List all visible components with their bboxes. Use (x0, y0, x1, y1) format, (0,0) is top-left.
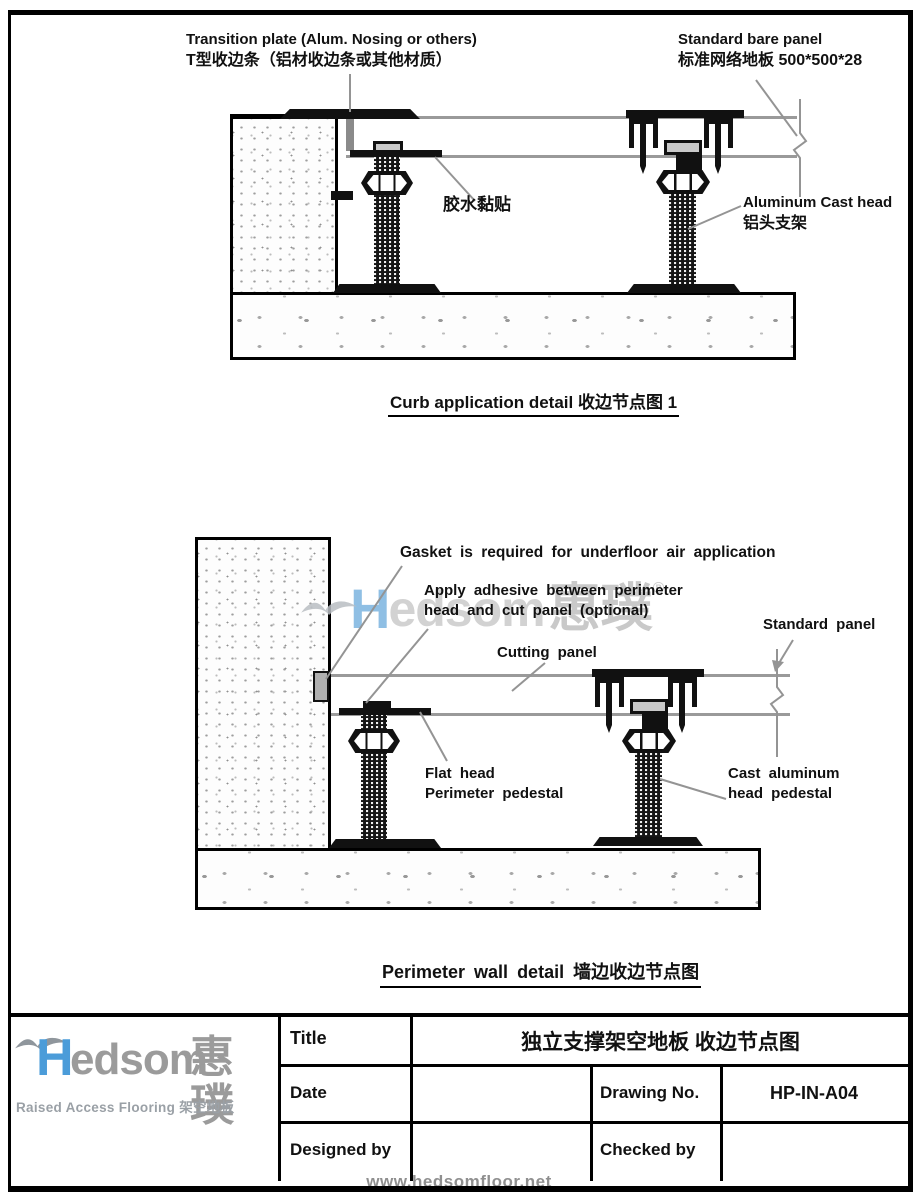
gasket (313, 671, 329, 702)
drawing-no-label: Drawing No. (600, 1083, 699, 1103)
logo-tagline: Raised Access Flooring 架空地板 (16, 1096, 234, 1116)
titleblock-row-divider-2 (280, 1121, 908, 1124)
label-transition-plate-en: Transition plate (Alum. Nosing or others… (186, 30, 477, 50)
pedestal4-base-plate (593, 837, 703, 846)
label-apply-adhesive: Apply adhesive between perimeter head an… (424, 581, 683, 621)
drawing-no-value: HP-IN-A04 (723, 1083, 905, 1104)
pedestal2-top-bar (626, 110, 744, 118)
leader-flat-head (420, 712, 447, 761)
label-flat-head-line1: Flat head (425, 764, 563, 784)
label-cast-head-zh: 铝头支架 (743, 213, 892, 234)
curb-concrete-block (230, 114, 338, 297)
label-cast-head-en: Aluminum Cast head (743, 193, 892, 213)
leader-standard-panel (776, 640, 793, 668)
label-cast-aluminum-line1: Cast aluminum (728, 764, 840, 784)
caption-curb-detail: Curb application detail 收边节点图 1 (388, 388, 679, 417)
drawing-sheet: Transition plate (Alum. Nosing or others… (0, 0, 918, 1200)
label-cutting-panel: Cutting panel (497, 643, 597, 663)
label-cast-head: Aluminum Cast head 铝头支架 (743, 193, 892, 234)
pedestal3-head-plate (339, 708, 431, 715)
label-flat-head-line2: Perimeter pedestal (425, 784, 563, 804)
floor-slab-2 (195, 848, 761, 910)
floor-slab-1 (230, 292, 796, 360)
title-value: 独立支撑架空地板 收边节点图 (413, 1026, 908, 1056)
pedestal3-nut (348, 729, 400, 753)
label-transition-plate-zh: T型收边条（铝材收边条或其他材质） (186, 50, 477, 71)
pedestal1-base-plate (333, 284, 441, 293)
title-label: Title (290, 1028, 327, 1049)
transition-plate (280, 109, 420, 119)
label-flat-head-pedestal: Flat head Perimeter pedestal (425, 764, 563, 804)
label-apply-adhesive-line2: head and cut panel (optional) (424, 601, 683, 621)
pedestal3-base-plate (329, 839, 441, 848)
pedestal1-nut (361, 171, 413, 195)
panel-edge-strip (346, 119, 354, 151)
pedestal4-top-bar (592, 669, 704, 677)
label-transition-plate: Transition plate (Alum. Nosing or others… (186, 30, 477, 71)
titleblock-col-mid (590, 1064, 593, 1181)
label-cast-aluminum-pedestal: Cast aluminum head pedestal (728, 764, 840, 804)
designed-by-label: Designed by (290, 1140, 391, 1160)
leader-cast-aluminum (660, 779, 726, 799)
logo-brand-cjk: 惠璞 (190, 1034, 274, 1131)
titleblock-row-divider-1 (280, 1064, 908, 1067)
titleblock-top-border (8, 1013, 908, 1017)
label-standard-bare-panel-zh: 标准网络地板 500*500*28 (678, 50, 862, 71)
label-standard-panel: Standard panel (763, 615, 875, 635)
pedestal2-left-screw (640, 124, 646, 166)
label-standard-bare-panel-en: Standard bare panel (678, 30, 862, 50)
label-gasket: Gasket is required for underfloor air ap… (400, 543, 775, 563)
arrowhead-standard-panel (772, 660, 784, 672)
pedestal1-head-plate (350, 150, 442, 157)
pedestal4-right-screw (679, 683, 685, 725)
label-apply-adhesive-line1: Apply adhesive between perimeter (424, 581, 683, 601)
label-standard-bare-panel: Standard bare panel 标准网络地板 500*500*28 (678, 30, 862, 71)
pedestal2-head-cap (664, 140, 702, 155)
company-logo: H edsom 惠璞 Raised Access Flooring 架空地板 (14, 1030, 274, 1122)
logo-brand-body: edsom (70, 1036, 207, 1084)
checked-by-label: Checked by (600, 1140, 695, 1160)
pedestal4-left-screw (606, 683, 612, 725)
pedestal4-head-cap (630, 699, 668, 714)
date-label: Date (290, 1083, 327, 1103)
pedestal2-right-screw (715, 124, 721, 166)
pedestal4-post (635, 753, 662, 841)
watermark-bird-icon (300, 595, 358, 623)
label-cast-aluminum-line2: head pedestal (728, 784, 840, 804)
titleblock-col-logo (278, 1013, 281, 1181)
caption-perimeter-detail: Perimeter wall detail 墙边收边节点图 (380, 958, 701, 988)
label-glue: 胶水黏贴 (443, 194, 511, 216)
glue-dab (331, 191, 353, 200)
logo-brand-h: H (36, 1030, 72, 1087)
pedestal2-base-plate (627, 284, 741, 293)
pedestal4-nut (622, 729, 676, 753)
website-url: www.hedsomfloor.net (0, 1172, 918, 1192)
pedestal2-nut (656, 170, 710, 194)
titleblock-col-value (720, 1064, 723, 1181)
pedestal2-post (669, 194, 696, 290)
